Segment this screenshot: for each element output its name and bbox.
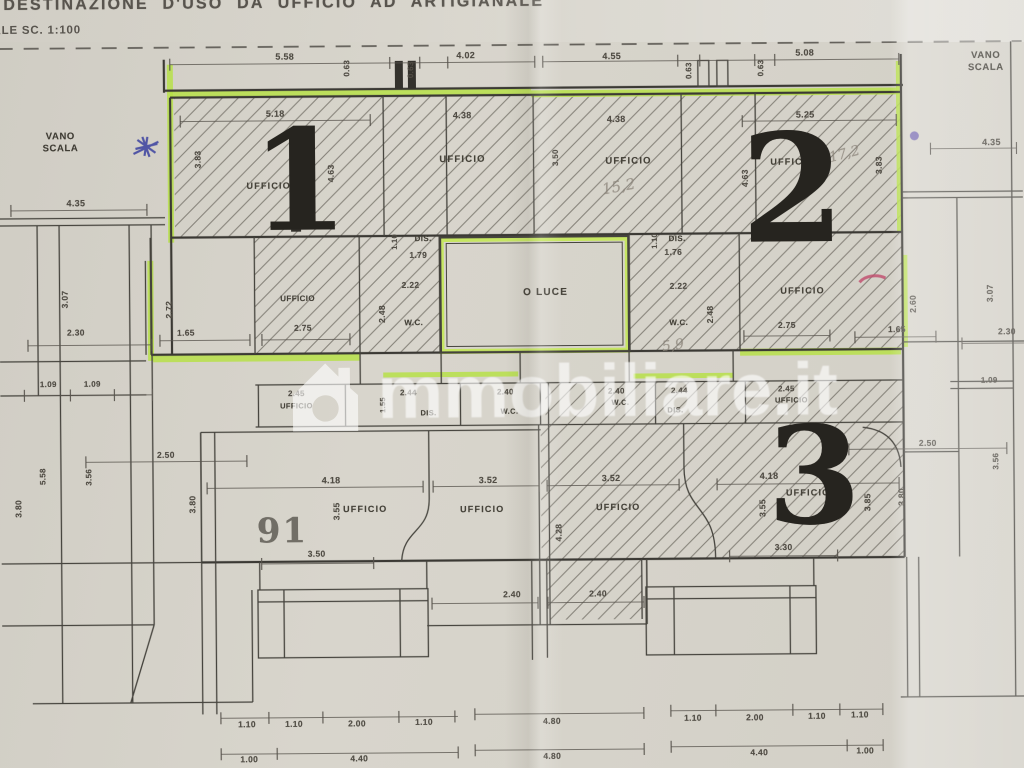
dimension-label: 4.55 bbox=[602, 51, 621, 61]
dimension-label: 1.55 bbox=[379, 397, 388, 413]
room-label: W.C. bbox=[501, 408, 519, 417]
dimension-label: 1.09 bbox=[981, 376, 998, 385]
dimension-label: 0.63 bbox=[684, 62, 693, 79]
dimension-label: 1.00 bbox=[856, 746, 874, 756]
dimension-label: 3.07 bbox=[61, 291, 71, 309]
room-label: UFFICIO bbox=[439, 155, 485, 166]
dimension-label: 0.63 bbox=[756, 60, 765, 77]
room-label: W.C. bbox=[404, 318, 423, 327]
dimension-label: 2.30 bbox=[998, 327, 1016, 337]
dimension-label: 0.63 bbox=[406, 61, 415, 78]
dimension-label: 2.40 bbox=[608, 387, 625, 396]
room-label: UFFICIO bbox=[460, 504, 504, 515]
dimension-label: 1.76 bbox=[664, 248, 682, 258]
dimension-label: 3.52 bbox=[479, 475, 498, 485]
dimension-label: 1.10 bbox=[684, 714, 702, 724]
dimension-label: 3.80 bbox=[188, 496, 198, 514]
dimension-label: 2.48 bbox=[378, 305, 388, 323]
room-label: UFFICIO bbox=[780, 285, 824, 296]
unit-number: 2 bbox=[740, 122, 845, 258]
dimension-label: 2.50 bbox=[157, 451, 175, 461]
dimension-label: 4.38 bbox=[453, 110, 472, 120]
dimension-label: 1.10 bbox=[238, 720, 256, 730]
dimension-label: 5.08 bbox=[795, 47, 814, 57]
unit-number: 3 bbox=[767, 415, 862, 537]
room-label: DIS. bbox=[415, 234, 432, 243]
dimension-label: 2.45 bbox=[288, 389, 305, 398]
parcel-number: 91 bbox=[257, 512, 309, 551]
dimension-label: 5.58 bbox=[38, 468, 47, 485]
dimension-label: 1.65 bbox=[888, 325, 906, 335]
dimension-label: 4.80 bbox=[543, 752, 561, 762]
dimension-label: 2.50 bbox=[919, 439, 937, 449]
dimension-label: 3.80 bbox=[14, 500, 24, 518]
dimension-label: 4.38 bbox=[607, 114, 626, 124]
dimension-label: 3.80 bbox=[897, 488, 907, 506]
dimension-label: 4.40 bbox=[350, 754, 368, 764]
dimension-label: 2.22 bbox=[670, 282, 688, 292]
dimension-label: 4.35 bbox=[66, 198, 85, 208]
dimension-label: 2.40 bbox=[503, 590, 521, 600]
dimension-label: 1.79 bbox=[409, 251, 427, 261]
room-label: UFFICIO bbox=[280, 294, 315, 303]
dimension-label: 1.10 bbox=[851, 710, 869, 720]
dimension-label: 0.63 bbox=[342, 60, 351, 77]
dimension-label: 4.18 bbox=[322, 475, 341, 485]
dimension-label: 3.85 bbox=[863, 493, 873, 511]
handwritten-note: 5,9 bbox=[661, 336, 685, 355]
dimension-label: 2.72 bbox=[165, 301, 175, 319]
dimension-label: 1.10 bbox=[391, 234, 400, 250]
dimension-label: 1.65 bbox=[177, 329, 195, 339]
area-label: VANO SCALA bbox=[968, 50, 1004, 75]
dimension-label: 3.56 bbox=[991, 453, 1000, 470]
dimension-label: 2.30 bbox=[67, 328, 85, 338]
room-label: DIS. bbox=[667, 406, 683, 415]
plan-rotation-wrapper: DESTINAZIONE D'USO DA UFFICIO AD ARTIGIA… bbox=[0, 0, 1024, 768]
dimension-label: 2.75 bbox=[778, 321, 796, 331]
dimension-label: 2.48 bbox=[706, 306, 716, 324]
dimension-label: 4.02 bbox=[456, 50, 475, 60]
room-label: DIS. bbox=[420, 409, 436, 418]
dimension-label: 2.40 bbox=[589, 589, 607, 599]
room-label: O LUCE bbox=[523, 287, 568, 299]
dimension-label: 2.44 bbox=[671, 386, 688, 395]
dimension-label: 3.50 bbox=[308, 550, 326, 560]
room-label: DIS. bbox=[669, 234, 686, 243]
plan-labels: 5.580.630.634.024.550.630.635.08VANO SCA… bbox=[0, 0, 1024, 768]
floorplan-photo: DESTINAZIONE D'USO DA UFFICIO AD ARTIGIA… bbox=[0, 0, 1024, 768]
dimension-label: 3.56 bbox=[84, 469, 93, 486]
dimension-label: 2.75 bbox=[294, 324, 312, 334]
dimension-label: 1.00 bbox=[240, 755, 258, 765]
dimension-label: 2.60 bbox=[909, 295, 919, 313]
dimension-label: 1.10 bbox=[808, 712, 826, 722]
dimension-label: 2.44 bbox=[400, 388, 417, 397]
dimension-label: 5.58 bbox=[275, 52, 294, 62]
room-label: W.C. bbox=[669, 318, 688, 327]
dimension-label: 2.45 bbox=[778, 384, 795, 393]
dimension-label: 4.28 bbox=[555, 524, 565, 542]
dimension-label: 4.35 bbox=[982, 137, 1001, 147]
area-label: VANO SCALA bbox=[42, 131, 78, 156]
handwritten-note: 15,2 bbox=[601, 176, 637, 199]
dimension-label: 1.10 bbox=[415, 718, 433, 728]
dimension-label: 3.83 bbox=[875, 156, 885, 174]
dimension-label: 4.40 bbox=[750, 748, 768, 758]
room-label: W.C. bbox=[611, 399, 629, 408]
dimension-label: 2.40 bbox=[497, 387, 514, 396]
dimension-label: 2.22 bbox=[402, 281, 420, 291]
unit-number: 1 bbox=[251, 118, 349, 245]
dimension-label: 2.00 bbox=[746, 713, 764, 723]
room-label: UFFICIO bbox=[343, 504, 387, 515]
dimension-label: 1.10 bbox=[651, 233, 660, 249]
dimension-label: 3.83 bbox=[194, 151, 204, 169]
dimension-label: 1.09 bbox=[40, 380, 57, 389]
dimension-label: 3.55 bbox=[332, 502, 342, 520]
room-label: UFFICIO bbox=[280, 402, 313, 411]
dimension-label: 1.09 bbox=[84, 380, 101, 389]
dimension-label: 2.00 bbox=[348, 719, 366, 729]
dimension-label: 3.07 bbox=[986, 284, 996, 302]
dimension-label: 1.10 bbox=[285, 720, 303, 730]
room-label: UFFICIO bbox=[605, 156, 651, 167]
dimension-label: 3.50 bbox=[551, 149, 560, 166]
dimension-label: 4.80 bbox=[543, 717, 561, 727]
dimension-label: 3.52 bbox=[602, 473, 621, 483]
room-label: UFFICIO bbox=[596, 502, 640, 513]
